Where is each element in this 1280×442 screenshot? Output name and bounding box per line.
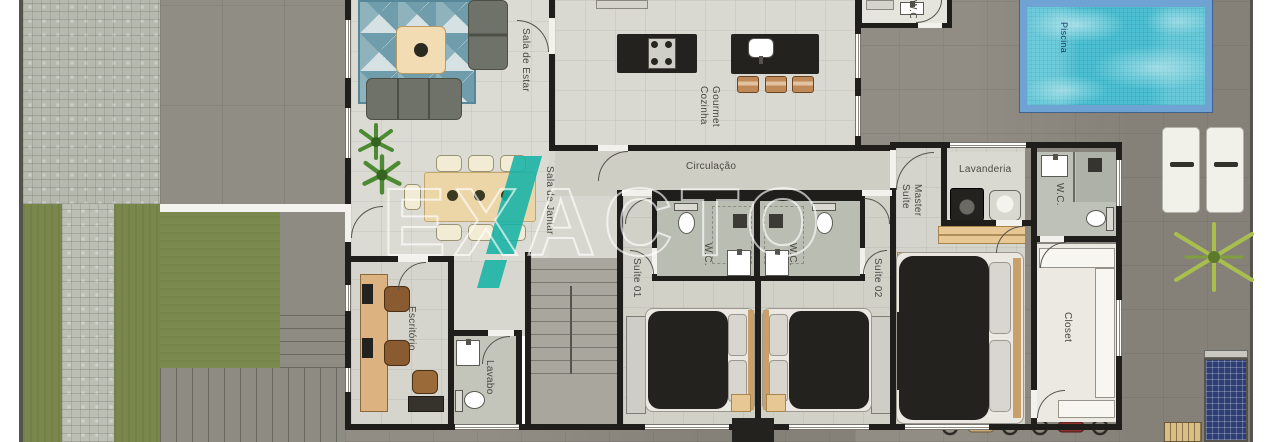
monitor <box>362 284 373 304</box>
dining-chair <box>404 184 421 210</box>
office-chair <box>412 370 438 394</box>
room-label-lavabo: Lavabo <box>483 360 495 400</box>
window <box>455 424 519 430</box>
lawn-strip-mid <box>114 204 160 442</box>
door-gap <box>890 150 896 188</box>
window <box>789 424 869 430</box>
pool-water <box>1027 7 1205 105</box>
pillow <box>728 314 747 356</box>
door-gap <box>598 145 628 151</box>
wall <box>617 196 623 430</box>
burner <box>665 58 672 65</box>
window <box>855 34 861 78</box>
wall <box>1031 148 1037 430</box>
bar-stool <box>792 76 814 93</box>
kitchen-island-sink <box>731 34 819 74</box>
pool <box>1020 0 1212 112</box>
water-heater <box>989 190 1021 221</box>
window <box>1116 300 1122 356</box>
room-label-closet: Closet <box>1061 312 1073 356</box>
shower-head <box>769 214 783 228</box>
bed-duvet <box>789 311 869 409</box>
dining-chair <box>468 155 494 172</box>
dining-chair <box>436 155 462 172</box>
room-label-lavanderia: Lavanderia <box>959 164 1011 176</box>
wall <box>448 262 454 430</box>
blue-gate-panel <box>1204 358 1248 442</box>
toilet-bowl <box>1086 210 1106 227</box>
sun-lounger <box>1206 127 1244 213</box>
toilet <box>1106 207 1114 231</box>
window <box>950 142 1026 148</box>
walkway-edge <box>160 204 346 212</box>
concrete-driveway <box>160 0 346 206</box>
bed-duvet <box>648 311 728 409</box>
printer-shelf <box>408 396 444 412</box>
floor-plan: Piscina <box>0 0 1280 442</box>
toilet-bowl <box>678 212 695 234</box>
deck-steps-wide <box>160 368 346 442</box>
toilet <box>455 390 463 412</box>
door-gap <box>1031 390 1037 418</box>
sofa-section <box>366 78 462 120</box>
shower-glass <box>1073 152 1075 202</box>
table-decor <box>414 43 428 57</box>
door-gap <box>1040 236 1064 242</box>
pillow <box>989 262 1011 334</box>
toilet <box>812 203 836 211</box>
kitchen-counter-top <box>596 0 648 9</box>
bathroom-sink <box>456 340 480 366</box>
pillow <box>769 314 788 356</box>
centerpiece-plant <box>447 190 458 201</box>
nightstand <box>731 394 751 412</box>
room-label-wc-externo: W.C. <box>906 0 918 18</box>
toilet-bowl <box>464 391 485 409</box>
door-gap <box>996 220 1022 226</box>
centerpiece-plant <box>474 190 485 201</box>
faucet <box>759 56 763 64</box>
garden-path <box>62 204 114 442</box>
paver-driveway <box>23 0 160 204</box>
shower-head <box>733 214 747 228</box>
closet-wardrobe <box>1095 268 1115 398</box>
door-gap <box>488 330 514 336</box>
wall <box>755 281 761 430</box>
door-gap <box>549 18 555 54</box>
window <box>345 285 351 311</box>
nightstand <box>766 394 786 412</box>
counter <box>866 0 894 10</box>
room-label-suite-master: Suíte Master <box>899 184 925 232</box>
burner <box>665 41 672 48</box>
window <box>345 108 351 158</box>
wall <box>525 252 531 430</box>
deck-steps-side <box>280 306 346 368</box>
wardrobe <box>626 316 646 414</box>
lawn-strip-left <box>23 204 62 442</box>
burner <box>651 58 658 65</box>
headboard <box>1013 258 1021 418</box>
staircase-rail <box>570 286 572 374</box>
sun-lounger <box>1162 127 1200 213</box>
gate-cap <box>1204 350 1248 358</box>
kitchen-sink <box>748 38 774 58</box>
door-gap <box>918 23 942 28</box>
bed-duvet <box>899 256 989 420</box>
wood-planks <box>1164 422 1202 442</box>
room-label-wc-suite-01: W.C. <box>701 243 713 275</box>
room-label-cozinha-gourmet: Cozinha Gourmet <box>697 86 723 136</box>
monitor <box>362 338 373 358</box>
window <box>855 96 861 136</box>
room-label-piscina: Piscina <box>1058 22 1070 92</box>
window <box>645 424 729 430</box>
potted-plant <box>358 152 406 198</box>
door-gap <box>622 190 652 196</box>
room-label-circulacao: Circulação <box>686 161 736 173</box>
room-label-escritorio: Escritório <box>405 306 417 362</box>
bathroom-sink <box>727 250 751 276</box>
bar-stool <box>765 76 787 93</box>
dining-chair <box>436 224 462 241</box>
tv-panel <box>897 312 902 390</box>
bathroom-sink <box>1041 155 1068 177</box>
wall <box>754 196 760 281</box>
wall <box>941 148 947 226</box>
palm-plant <box>1168 220 1260 294</box>
washing-machine <box>950 188 984 221</box>
door-gap <box>862 190 892 196</box>
window <box>345 20 351 78</box>
room-label-wc-suite-02: W.C. <box>786 243 798 275</box>
room-label-suite-02: Suíte 02 <box>871 258 883 318</box>
pillow <box>989 340 1011 412</box>
burner <box>651 41 658 48</box>
toilet-bowl <box>816 212 833 234</box>
closet-wardrobe <box>1058 400 1115 418</box>
window <box>345 368 351 392</box>
bar-stool <box>737 76 759 93</box>
wall <box>947 0 952 28</box>
wardrobe <box>871 316 891 414</box>
wall <box>516 336 522 430</box>
shower-head <box>1088 158 1102 172</box>
room-label-suite-01: Suíte 01 <box>630 258 642 318</box>
patio-south <box>345 430 855 442</box>
room-label-sala-de-jantar: Sala de Jantar <box>543 166 555 286</box>
toilet <box>674 203 698 211</box>
window <box>905 424 989 430</box>
room-label-wc-master: W.C. <box>1053 183 1065 213</box>
sofa-section <box>468 0 508 70</box>
pillar <box>732 418 774 442</box>
window <box>1116 160 1122 206</box>
